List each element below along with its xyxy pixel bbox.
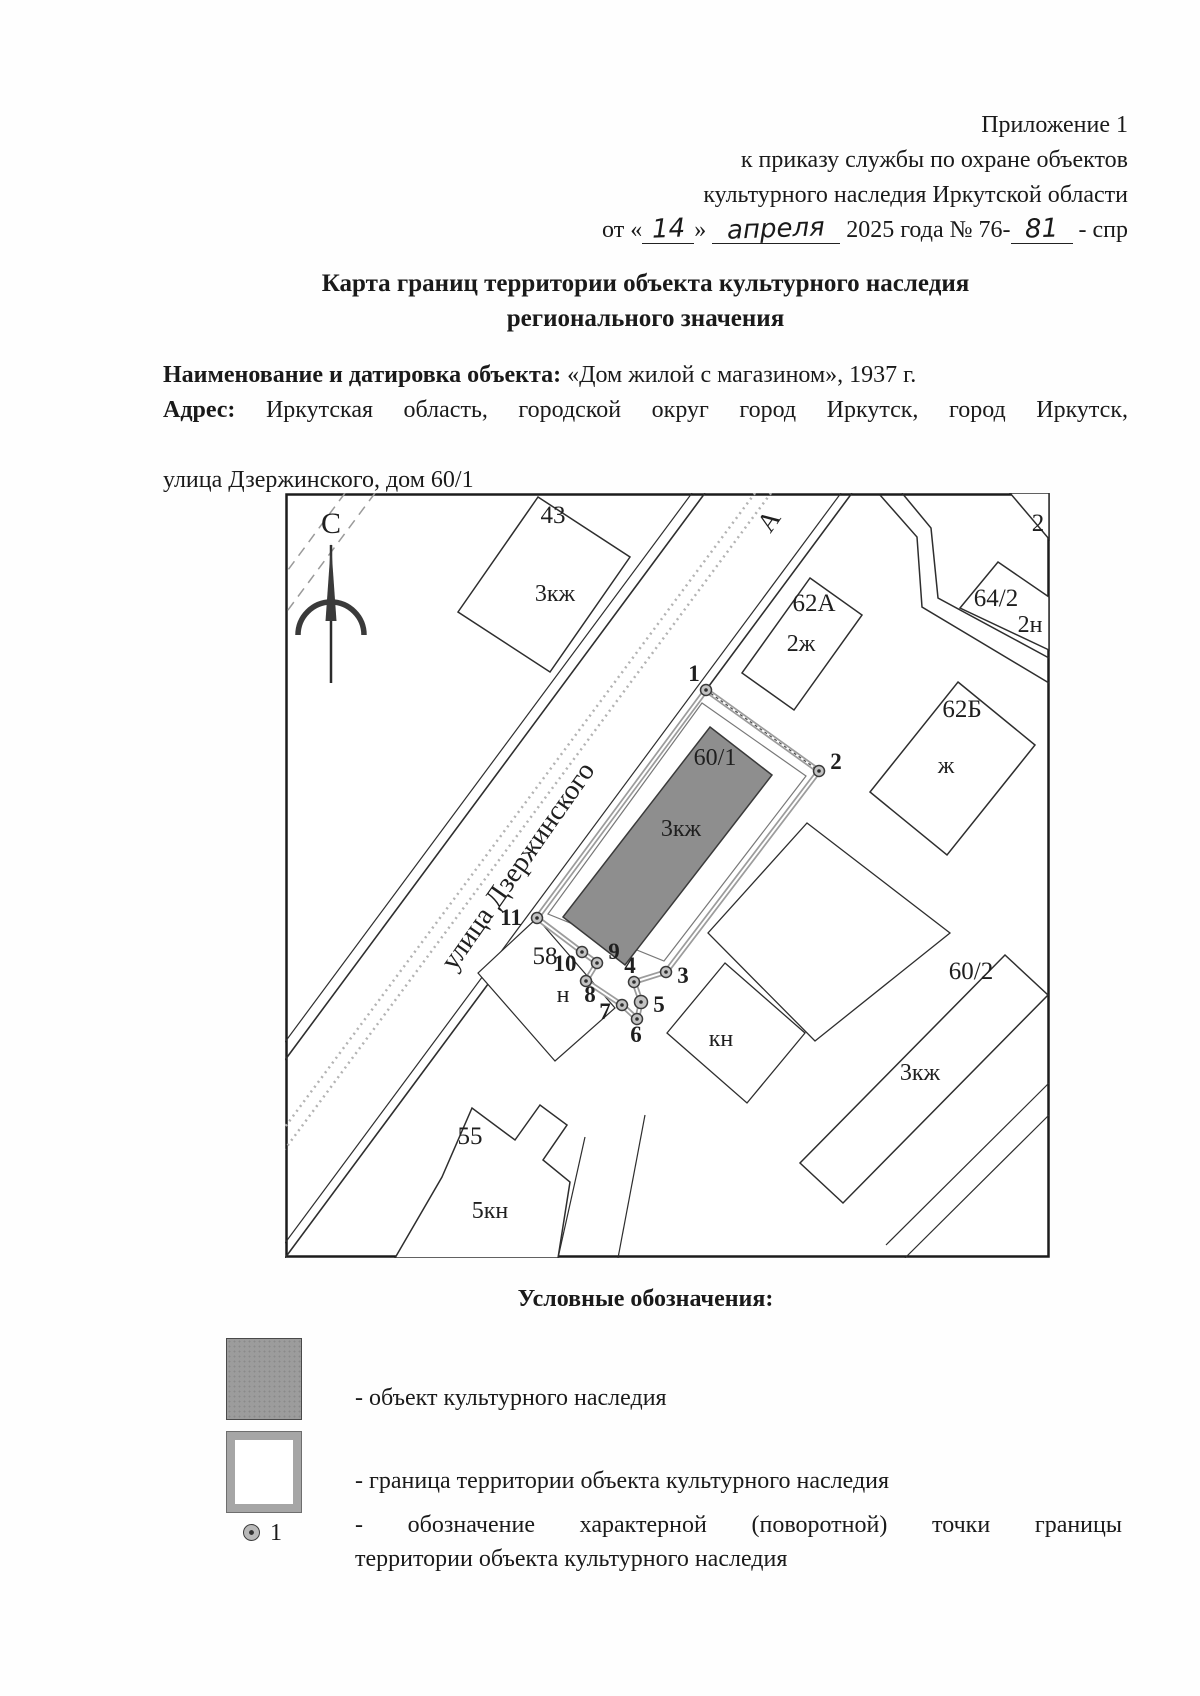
scanned-document-page: { "document": { "appendix": { "line1": "… (0, 0, 1200, 1696)
point-label-2: 2 (830, 749, 842, 774)
legend-point-symbol (243, 1524, 260, 1541)
point-label-3: 3 (677, 963, 689, 988)
point-label-6: 6 (630, 1022, 642, 1047)
order-date-line: от «14» апреля 2025 года № 76-81 - спр (508, 213, 1128, 248)
parcel-kn-type: кн (709, 1026, 734, 1052)
parcel-62a-number: 62А (792, 590, 835, 617)
legend-point-number: 1 (270, 1516, 282, 1550)
legend-title: Условные обозначения: (163, 1286, 1128, 1313)
address-value-part1: Иркутская область, городской округ город… (235, 397, 1128, 423)
parcel-64-2-number: 64/2 (974, 585, 1018, 612)
object-type-label: 3кж (661, 816, 702, 842)
legend-boundary-swatch (227, 1432, 301, 1512)
document-title-line-1: Карта границ территории объекта культурн… (163, 266, 1128, 301)
object-house-number: 60/1 (694, 745, 737, 771)
parcel-58-type: н (557, 982, 570, 1008)
point-label-1: 1 (688, 661, 700, 686)
north-label: С (321, 507, 341, 540)
parcel-43-type: 3кж (535, 581, 576, 607)
boundary-map: 1 2 3 4 5 6 7 8 9 10 11 43 3кж 62А 2ж 64… (285, 493, 1050, 1258)
point-label-5: 5 (653, 992, 665, 1017)
address-line-1: Адрес: Иркутская область, городской окру… (163, 393, 1128, 463)
order-month-underline: апреля (712, 216, 840, 244)
point-label-7: 7 (599, 999, 611, 1024)
parcel-58-number: 58 (533, 943, 558, 970)
order-prefix: от « (602, 217, 642, 243)
object-name-line: Наименование и датировка объекта: «Дом ж… (163, 358, 1128, 393)
parcel-55-type: 5кн (472, 1198, 509, 1224)
order-day-underline: 14 (642, 216, 694, 244)
order-number-underline: 81 (1011, 216, 1073, 244)
order-close-quote: » (694, 217, 706, 243)
legend-boundary-text: - граница территории объекта культурного… (355, 1464, 889, 1498)
order-middle: 2025 года № 76- (846, 217, 1010, 243)
parcel-55-number: 55 (458, 1123, 483, 1150)
parcel-62b-number: 62Б (942, 696, 981, 723)
parcel-2-number-clipped: 2 (1032, 510, 1045, 537)
point-label-9: 9 (608, 939, 620, 964)
legend-object-text: - объект культурного наследия (355, 1381, 667, 1415)
parcel-60-2-number: 60/2 (949, 958, 993, 985)
object-description: Наименование и датировка объекта: «Дом ж… (163, 358, 1128, 498)
address-label: Адрес: (163, 397, 235, 423)
order-month-handwritten: апреля (727, 214, 826, 243)
document-title-line-2: регионального значения (163, 301, 1128, 336)
map-svg: 1 2 3 4 5 6 7 8 9 10 11 43 3кж 62А 2ж 64… (285, 493, 1050, 1258)
point-label-4: 4 (624, 953, 636, 978)
object-name-value: «Дом жилой с магазином», 1937 г. (561, 362, 916, 388)
parcel-64-2-type: 2н (1018, 612, 1043, 638)
parcel-62a-type: 2ж (787, 631, 816, 657)
object-name-label: Наименование и датировка объекта: (163, 362, 561, 388)
appendix-line-3: культурного наследия Иркутской области (508, 178, 1128, 213)
order-day-handwritten: 14 (651, 215, 685, 242)
parcel-43-number: 43 (541, 502, 566, 529)
legend-point-text-line-2: территории объекта культурного наследия (355, 1542, 1122, 1576)
appendix-line-2: к приказу службы по охране объектов (508, 143, 1128, 178)
parcel-60-2-type: 3кж (900, 1060, 941, 1086)
document-title: Карта границ территории объекта культурн… (163, 266, 1128, 336)
order-suffix: - спр (1079, 217, 1129, 243)
parcel-62b-type: ж (937, 753, 955, 779)
appendix-line-1: Приложение 1 (508, 108, 1128, 143)
legend-object-swatch (226, 1338, 302, 1420)
appendix-header: Приложение 1 к приказу службы по охране … (508, 108, 1128, 248)
point-label-8: 8 (584, 982, 596, 1007)
order-number-handwritten: 81 (1025, 215, 1059, 242)
